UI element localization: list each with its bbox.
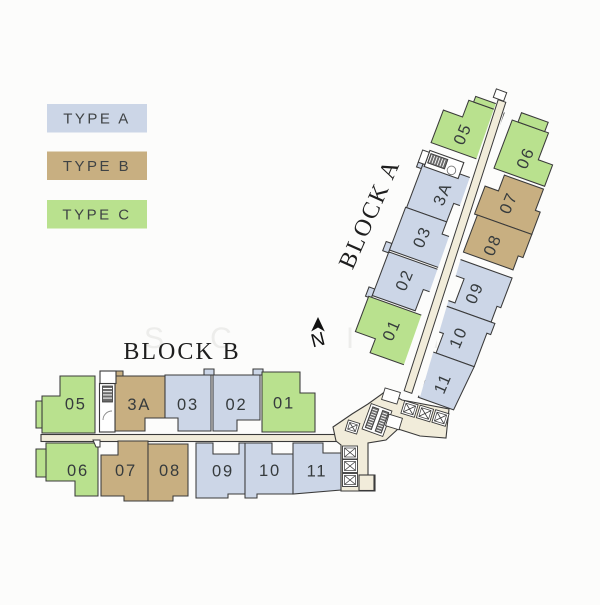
svg-text:TYPE C: TYPE C: [62, 207, 131, 224]
svg-text:09: 09: [212, 463, 234, 481]
svg-text:08: 08: [159, 462, 181, 480]
svg-text:07: 07: [115, 462, 137, 480]
svg-text:02: 02: [226, 396, 248, 414]
svg-text:TYPE B: TYPE B: [63, 158, 131, 175]
svg-text:3A: 3A: [127, 396, 151, 414]
svg-text:11: 11: [307, 463, 328, 481]
svg-text:03: 03: [177, 396, 199, 414]
svg-text:05: 05: [65, 396, 87, 414]
svg-text:10: 10: [259, 462, 281, 480]
svg-text:BLOCK B: BLOCK B: [123, 339, 240, 365]
svg-text:01: 01: [273, 395, 295, 413]
svg-text:TYPE A: TYPE A: [63, 111, 131, 128]
svg-text:I: I: [346, 322, 354, 355]
svg-text:06: 06: [67, 462, 89, 480]
